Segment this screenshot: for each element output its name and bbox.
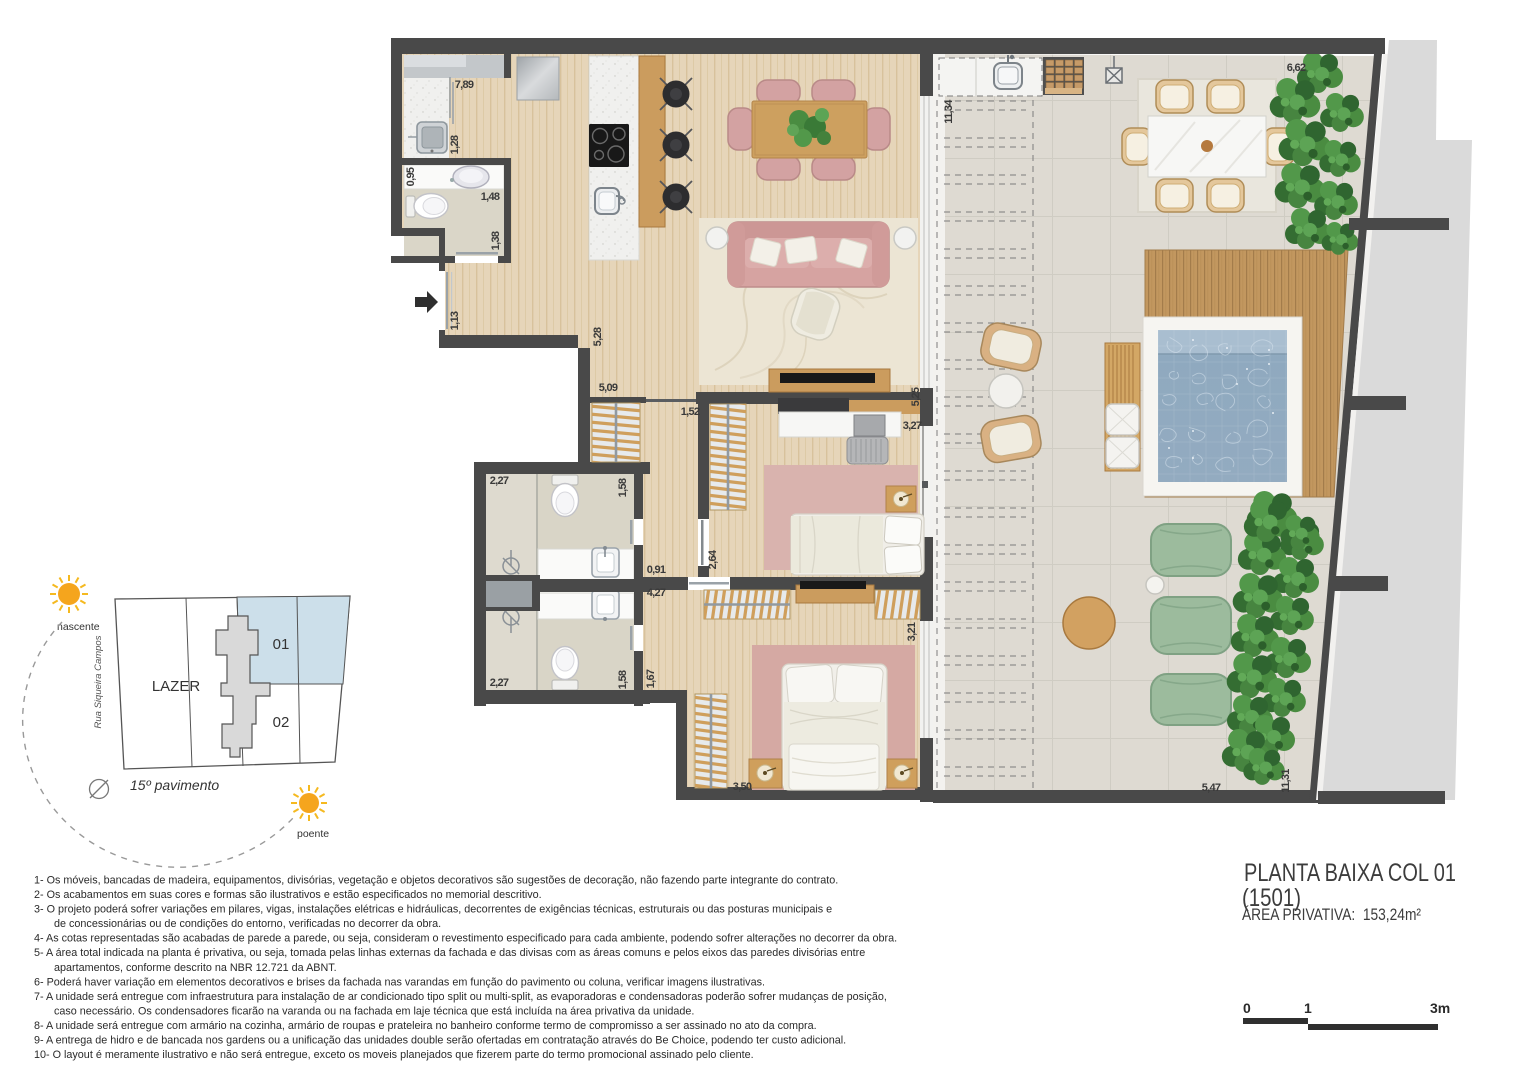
svg-text:1,58: 1,58	[617, 478, 629, 497]
svg-text:0: 0	[1243, 1000, 1251, 1016]
svg-text:4- As cotas representadas são: 4- As cotas representadas são acabadas d…	[34, 933, 897, 945]
svg-text:nascente: nascente	[57, 621, 100, 633]
svg-text:1,48: 1,48	[481, 191, 500, 203]
svg-text:PLANTA BAIXA COL 01: PLANTA BAIXA COL 01	[1244, 859, 1456, 887]
svg-text:6,62: 6,62	[1287, 62, 1306, 74]
svg-text:5,28: 5,28	[592, 327, 604, 346]
svg-text:de concessionárias ou de condi: de concessionárias ou de condições do en…	[54, 918, 441, 930]
svg-text:9- A entrega de hidro e de ban: 9- A entrega de hidro e de bancada nos g…	[34, 1035, 846, 1047]
svg-text:3m: 3m	[1430, 1000, 1450, 1016]
svg-text:apartamentos, conforme descrit: apartamentos, conforme descrito na NBR 1…	[54, 962, 337, 974]
svg-text:LAZER: LAZER	[152, 678, 201, 695]
svg-text:1,52: 1,52	[681, 406, 700, 418]
svg-text:2- Os acabamentos em suas core: 2- Os acabamentos em suas cores e formas…	[34, 889, 542, 901]
svg-text:7- A unidade será entregue com: 7- A unidade será entregue com infraestr…	[34, 991, 887, 1003]
svg-text:5- A área total indicada na pl: 5- A área total indicada na planta é pri…	[34, 947, 865, 959]
svg-text:02: 02	[273, 714, 290, 731]
svg-text:Rua Siqueira Campos: Rua Siqueira Campos	[93, 635, 104, 728]
svg-text:11,31: 11,31	[1280, 769, 1292, 793]
svg-text:3- O projeto poderá sofrer var: 3- O projeto poderá sofrer variações em …	[34, 904, 832, 916]
svg-text:1,38: 1,38	[490, 231, 502, 250]
svg-text:3,50: 3,50	[733, 781, 752, 793]
svg-text:5,09: 5,09	[599, 382, 618, 394]
svg-text:1: 1	[1304, 1000, 1312, 1016]
svg-text:1,58: 1,58	[617, 670, 629, 689]
svg-text:3,27: 3,27	[903, 420, 922, 432]
svg-text:poente: poente	[297, 828, 329, 840]
svg-text:10- O layout é meramente ilust: 10- O layout é meramente ilustrativo e n…	[34, 1049, 754, 1061]
svg-text:11,34: 11,34	[943, 99, 955, 124]
svg-text:2,27: 2,27	[490, 677, 509, 689]
svg-text:7,89: 7,89	[455, 79, 474, 91]
svg-text:1- Os móveis, bancadas de made: 1- Os móveis, bancadas de madeira, equip…	[34, 875, 838, 887]
svg-text:5,25: 5,25	[910, 387, 922, 406]
svg-text:caso necessário. Os condensado: caso necessário. Os condensadores ficarã…	[54, 1006, 694, 1018]
svg-text:15º pavimento: 15º pavimento	[130, 777, 219, 793]
svg-text:0,91: 0,91	[647, 564, 666, 576]
svg-text:01: 01	[273, 636, 290, 653]
svg-text:ÁREA PRIVATIVA: 153,24m²: ÁREA PRIVATIVA: 153,24m²	[1242, 905, 1421, 924]
svg-text:2,64: 2,64	[707, 549, 719, 569]
svg-text:1,13: 1,13	[449, 311, 461, 330]
svg-text:3,21: 3,21	[906, 622, 918, 641]
svg-text:4,27: 4,27	[647, 587, 666, 599]
svg-text:6- Poderá haver variação em el: 6- Poderá haver variação em elementos de…	[34, 976, 765, 988]
svg-text:0,95: 0,95	[405, 167, 417, 186]
svg-text:1,67: 1,67	[645, 669, 657, 688]
svg-text:5,47: 5,47	[1202, 782, 1221, 794]
svg-text:8- A unidade será entregue com: 8- A unidade será entregue com armário n…	[34, 1020, 817, 1032]
svg-text:1,28: 1,28	[449, 135, 461, 154]
svg-text:2,27: 2,27	[490, 475, 509, 487]
